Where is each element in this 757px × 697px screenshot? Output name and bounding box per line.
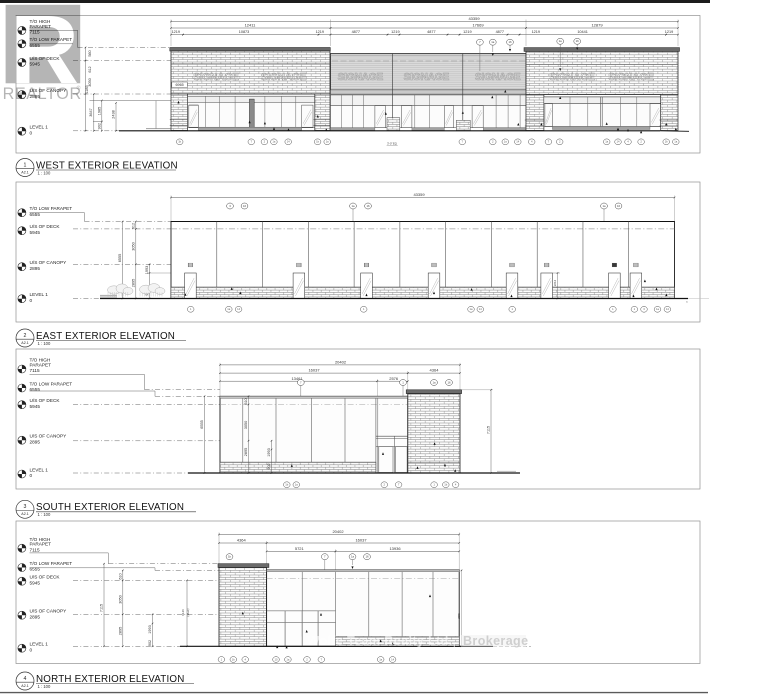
svg-text:NORTH EXTERIOR ELEVATION: NORTH EXTERIOR ELEVATION [36,674,185,685]
svg-text:1a: 1a [504,140,507,144]
svg-text:6965: 6965 [175,83,183,87]
svg-text:1a: 1a [470,307,473,311]
svg-text:6555: 6555 [118,254,122,262]
svg-text:3'-0" EQ: 3'-0" EQ [387,142,397,146]
svg-text:14: 14 [237,307,240,311]
svg-text:1a: 1a [272,140,275,144]
svg-text:6555: 6555 [30,567,41,572]
svg-text:SIGNAGE: SIGNAGE [261,72,307,83]
svg-text:3647: 3647 [89,108,93,116]
svg-text:(1A+C): (1A+C) [187,608,190,616]
svg-text:PARAPET: PARAPET [30,542,52,547]
svg-text:1a: 1a [491,40,495,44]
svg-text:2895: 2895 [30,439,41,444]
svg-text:3050: 3050 [131,242,135,250]
svg-text:2: 2 [24,333,27,339]
svg-text:1b: 1b [232,657,235,661]
svg-text:1a: 1a [351,204,355,208]
svg-text:5721: 5721 [295,546,305,551]
svg-text:14: 14 [666,307,669,311]
svg-text:EAST EXTERIOR ELEVATION: EAST EXTERIOR ELEVATION [36,331,175,342]
svg-text:560: 560 [88,50,92,56]
svg-text:14: 14 [391,657,394,661]
svg-text:U/S OF CANOPY: U/S OF CANOPY [30,434,68,439]
svg-text:5945: 5945 [30,580,41,585]
svg-text:43359: 43359 [413,192,425,197]
svg-text:0: 0 [30,647,33,652]
svg-text:1219: 1219 [172,30,180,34]
svg-text:1985: 1985 [97,107,101,115]
svg-text:1219: 1219 [316,30,324,34]
svg-text:2438: 2438 [112,110,116,118]
svg-text:16: 16 [243,204,247,208]
svg-text:U/S OF CANOPY: U/S OF CANOPY [30,609,68,614]
svg-text:4877: 4877 [427,30,435,34]
svg-text:4364: 4364 [237,538,247,543]
svg-text:13936: 13936 [389,546,401,551]
svg-text:A2.1: A2.1 [21,684,28,688]
svg-text:14: 14 [516,140,519,144]
svg-text:SIGNAGE: SIGNAGE [193,72,239,83]
svg-text:16: 16 [508,40,512,44]
svg-text:14: 14 [287,140,290,144]
svg-text:0: 0 [30,473,33,478]
svg-text:7115: 7115 [30,547,40,552]
svg-text:20402: 20402 [332,529,344,534]
svg-text:T/O LOW PARAPET: T/O LOW PARAPET [30,206,73,211]
svg-text:1219: 1219 [532,30,540,34]
svg-text:1b: 1b [316,140,319,144]
svg-text:2895: 2895 [118,627,122,635]
svg-text:1993: 1993 [267,448,271,456]
svg-text:1219: 1219 [463,30,471,34]
svg-text:1a: 1a [605,140,608,144]
svg-text:902: 902 [148,640,152,646]
svg-text:14: 14 [479,307,482,311]
svg-text:1a: 1a [351,555,355,559]
svg-text:3: 3 [24,504,27,510]
svg-text:SIGNAGE: SIGNAGE [549,72,595,83]
svg-text:1a: 1a [432,380,436,384]
svg-text:SIGNAGE: SIGNAGE [404,72,450,83]
svg-text:5945: 5945 [30,404,41,409]
svg-text:16: 16 [447,380,451,384]
svg-text:16037: 16037 [308,368,320,373]
svg-text:LEVEL 1: LEVEL 1 [30,642,49,647]
svg-text:A2.1: A2.1 [21,512,28,516]
svg-text:17669: 17669 [472,23,484,28]
svg-text:T/O LOW PARAPET: T/O LOW PARAPET [30,561,73,566]
svg-text:0: 0 [30,298,33,303]
svg-text:1185: 1185 [85,85,89,93]
svg-text:2895: 2895 [131,279,135,287]
svg-text:1219: 1219 [391,30,399,34]
svg-text:9146: 9146 [181,609,185,616]
svg-text:16: 16 [365,555,369,559]
svg-text:7115: 7115 [30,368,40,373]
svg-text:4364: 4364 [430,368,440,373]
svg-text:7115: 7115 [487,426,491,434]
svg-text:T/O LOW PARAPET: T/O LOW PARAPET [30,381,73,386]
svg-text:1a: 1a [227,307,230,311]
svg-text:902: 902 [267,463,271,469]
svg-text:SIGNAGE: SIGNAGE [338,72,384,83]
svg-text:16: 16 [576,39,580,43]
svg-text:16037: 16037 [355,538,367,543]
svg-text:c: c [686,300,688,304]
svg-text:3050: 3050 [118,595,122,603]
svg-text:2895: 2895 [244,448,248,456]
svg-text:2895: 2895 [30,614,41,619]
svg-text:1a: 1a [559,39,563,43]
svg-text:612: 612 [131,223,135,229]
svg-text:1219: 1219 [665,30,673,34]
svg-text:2214: 2214 [553,279,557,286]
svg-text:WEST EXTERIOR ELEVATION: WEST EXTERIOR ELEVATION [36,160,178,171]
svg-text:1b: 1b [285,483,288,487]
svg-text:1993: 1993 [148,625,152,633]
svg-text:A2.1: A2.1 [21,170,28,174]
svg-text:6555: 6555 [30,387,41,392]
svg-text:SOUTH EXTERIOR ELEVATION: SOUTH EXTERIOR ELEVATION [36,502,184,513]
svg-text:2576: 2576 [389,376,399,381]
svg-text:1a: 1a [326,140,329,144]
svg-text:3050: 3050 [244,421,248,429]
svg-text:0: 0 [30,130,33,135]
svg-text:14: 14 [617,140,620,144]
svg-text:2895: 2895 [458,613,461,619]
svg-text:902: 902 [97,123,101,129]
svg-text:U/S OF DECK: U/S OF DECK [30,575,61,580]
svg-text:1 : 100: 1 : 100 [38,341,51,346]
svg-text:A2.1: A2.1 [21,341,28,345]
svg-text:SIGNAGE: SIGNAGE [608,72,654,83]
svg-text:2895: 2895 [30,266,41,271]
svg-text:1a: 1a [674,140,677,144]
svg-text:10873: 10873 [239,30,250,34]
svg-text:1 : 100: 1 : 100 [38,684,51,689]
svg-text:LEVEL 1: LEVEL 1 [30,467,49,472]
svg-text:1a: 1a [295,483,298,487]
svg-text:7115: 7115 [100,604,104,612]
svg-text:5945: 5945 [30,230,41,235]
svg-text:4877: 4877 [496,30,504,34]
svg-text:SIGNAGE: SIGNAGE [475,72,521,83]
svg-text:1 : 100: 1 : 100 [38,170,51,175]
svg-text:610: 610 [118,573,122,579]
svg-text:1a: 1a [656,307,659,311]
svg-text:LEVEL 1: LEVEL 1 [30,125,49,130]
svg-text:20402: 20402 [335,360,347,365]
svg-text:1a: 1a [286,657,289,661]
svg-text:4877: 4877 [352,30,360,34]
svg-text:Wolfe Team Realty Ltd.,: Wolfe Team Realty Ltd., [307,634,456,648]
svg-text:1a: 1a [602,204,606,208]
svg-text:1 : 100: 1 : 100 [38,512,51,517]
svg-text:U/S OF DECK: U/S OF DECK [30,398,61,403]
svg-text:1b: 1b [444,483,447,487]
svg-text:6555: 6555 [200,420,204,428]
svg-text:LEVEL 1: LEVEL 1 [30,292,49,297]
svg-text:43359: 43359 [468,16,480,21]
svg-text:1a: 1a [379,657,382,661]
svg-text:1: 1 [24,162,27,168]
svg-text:Brokerage: Brokerage [463,634,528,648]
svg-text:1b: 1b [228,555,232,559]
svg-text:12879: 12879 [591,23,603,28]
svg-text:®: ® [77,85,81,92]
svg-text:U/S OF DECK: U/S OF DECK [30,224,61,229]
svg-text:U/S OF CANOPY: U/S OF CANOPY [30,260,68,265]
svg-text:612: 612 [88,66,92,72]
svg-text:4: 4 [24,676,27,682]
svg-text:610: 610 [244,398,248,404]
svg-text:10: 10 [275,657,278,661]
svg-text:10441: 10441 [577,30,588,34]
svg-text:PARAPET: PARAPET [30,362,52,367]
svg-text:16: 16 [617,204,621,208]
svg-text:REALTOR: REALTOR [3,85,82,103]
svg-text:12411: 12411 [245,23,257,28]
svg-text:1b: 1b [665,140,668,144]
svg-text:1b: 1b [178,140,181,144]
svg-text:16: 16 [366,204,370,208]
